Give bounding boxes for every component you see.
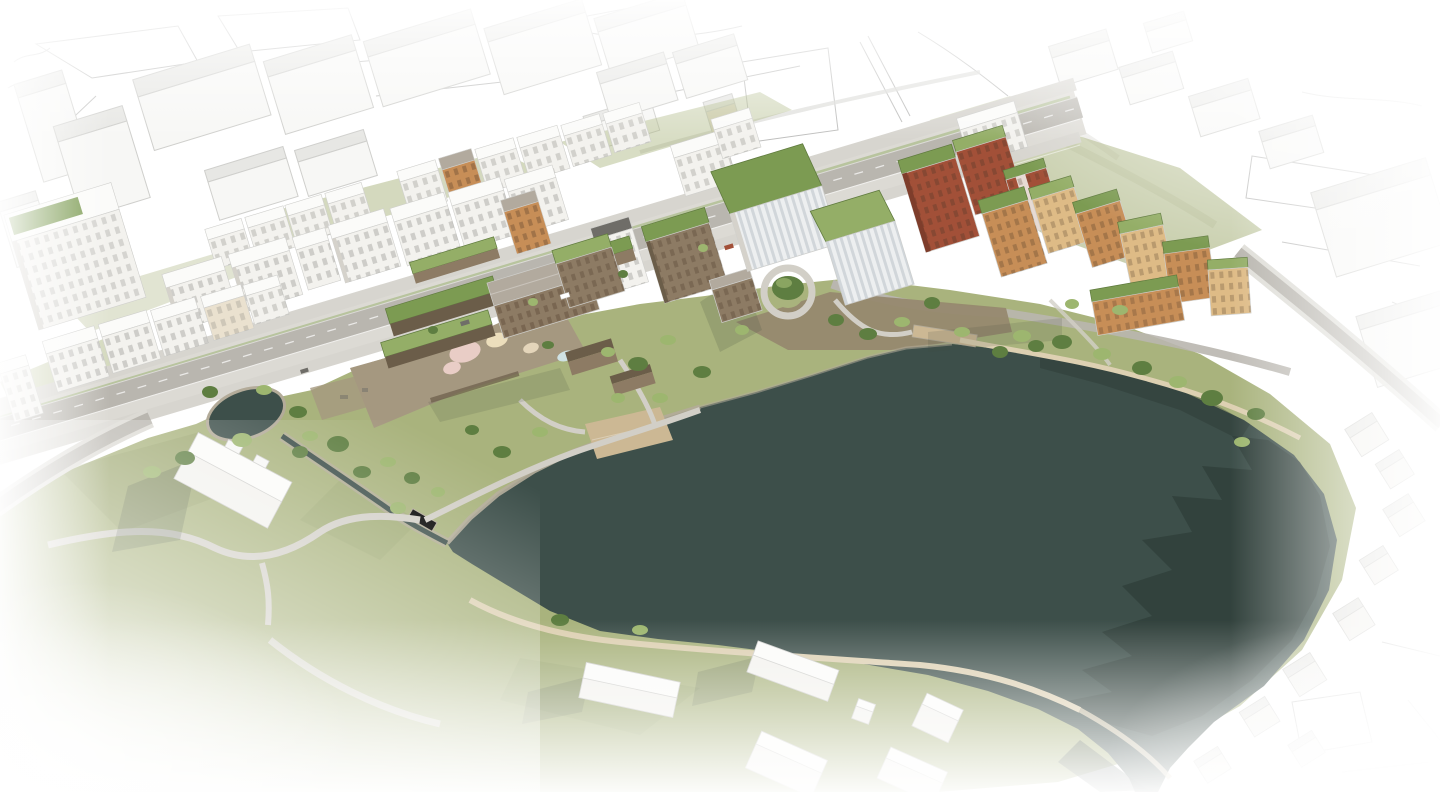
tree bbox=[924, 297, 940, 309]
tree bbox=[601, 347, 615, 357]
tree bbox=[776, 278, 792, 288]
tree bbox=[693, 366, 711, 378]
tree bbox=[828, 314, 844, 326]
tree bbox=[1052, 335, 1072, 349]
tree bbox=[859, 328, 877, 340]
tree bbox=[1093, 348, 1111, 360]
tree bbox=[542, 341, 554, 349]
tree bbox=[289, 406, 307, 418]
tree bbox=[698, 244, 708, 252]
tree bbox=[652, 393, 668, 403]
tree bbox=[1112, 305, 1128, 315]
tree bbox=[1132, 361, 1152, 375]
tree bbox=[1013, 330, 1031, 342]
tree bbox=[1028, 340, 1044, 352]
tree bbox=[992, 346, 1008, 358]
tree bbox=[954, 327, 970, 337]
tree bbox=[660, 335, 676, 345]
tree bbox=[528, 298, 538, 306]
tree bbox=[256, 385, 272, 395]
tree bbox=[628, 357, 648, 371]
tree bbox=[1065, 299, 1079, 309]
tree bbox=[735, 325, 749, 335]
tree bbox=[1169, 376, 1187, 388]
tree bbox=[202, 386, 218, 398]
tree bbox=[1201, 390, 1223, 406]
rendering-stage bbox=[0, 0, 1440, 792]
tree bbox=[428, 326, 438, 334]
tree bbox=[894, 317, 910, 327]
tree bbox=[618, 270, 628, 278]
aerial-rendering-canvas bbox=[0, 0, 1440, 792]
tree bbox=[611, 393, 625, 403]
